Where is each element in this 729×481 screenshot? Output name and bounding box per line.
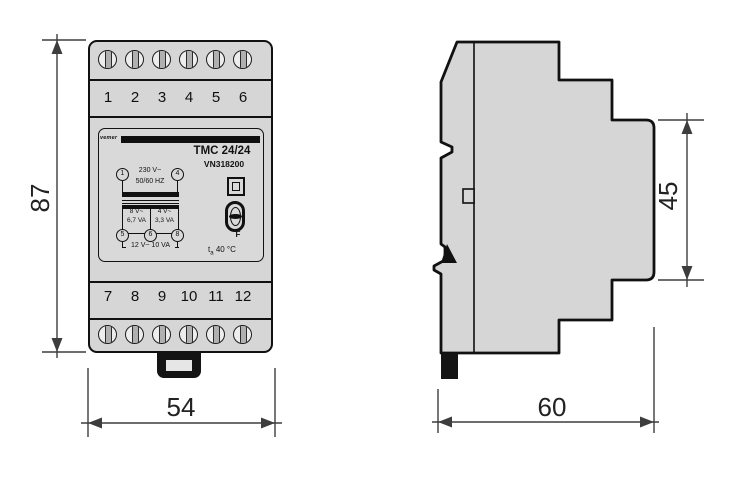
screw-icon bbox=[125, 325, 144, 344]
screw-icon bbox=[233, 50, 252, 69]
terminal-number: 8 bbox=[122, 288, 148, 305]
terminal-number: 5 bbox=[203, 89, 229, 106]
din-clip-tab-side bbox=[441, 354, 458, 379]
secondary-left-power: 6,7 VA bbox=[123, 217, 150, 224]
divider-line bbox=[90, 318, 271, 320]
terminal-number: 10 bbox=[176, 288, 202, 305]
secondary-terminal-left: 5 bbox=[116, 229, 129, 242]
ambient-value: 40 °C bbox=[216, 245, 236, 254]
screw-icon bbox=[179, 325, 198, 344]
secondary-terminal-mid: 6 bbox=[144, 229, 157, 242]
ambient-subscript: a bbox=[210, 251, 213, 257]
terminal-number: 3 bbox=[149, 89, 175, 106]
dim-front-face-height-label: 45 bbox=[653, 174, 683, 218]
fuse-label: F bbox=[232, 230, 244, 239]
secondary-left-voltage: 8 V~ bbox=[123, 208, 150, 215]
primary-frequency: 50/60 HZ bbox=[128, 178, 172, 185]
terminal-number: 4 bbox=[176, 89, 202, 106]
transformer-core-line bbox=[122, 200, 179, 201]
din-clip-slot bbox=[166, 360, 192, 371]
technical-drawing: 1 2 3 4 5 6 vemer TMC 24/24 VN318200 1 4… bbox=[0, 0, 729, 481]
primary-voltage: 230 V~ bbox=[128, 167, 172, 174]
dim-depth-label: 60 bbox=[522, 392, 582, 423]
dim-60-arrow-left bbox=[438, 417, 452, 428]
double-insulation-class-ii-icon bbox=[227, 177, 245, 196]
screw-icon bbox=[98, 325, 117, 344]
secondary-total-rating: 12 V~ 10 VA bbox=[126, 242, 175, 249]
din-clip-tab-front bbox=[157, 351, 201, 378]
terminal-number: 11 bbox=[203, 288, 229, 305]
screw-icon bbox=[233, 325, 252, 344]
terminal-number: 9 bbox=[149, 288, 175, 305]
terminal-number: 1 bbox=[95, 89, 121, 106]
dim-45-arrow-top bbox=[682, 120, 693, 134]
terminal-number: 12 bbox=[230, 288, 256, 305]
dim-45-arrow-bottom bbox=[682, 266, 693, 280]
brand-bar bbox=[121, 136, 260, 143]
screw-icon bbox=[206, 325, 225, 344]
side-view-latch-notch bbox=[463, 189, 474, 203]
primary-terminal-right: 4 bbox=[171, 168, 184, 181]
dim-54-arrow-right bbox=[261, 418, 275, 429]
fuse-holder-icon bbox=[225, 201, 245, 232]
screw-icon bbox=[125, 50, 144, 69]
terminal-number: 7 bbox=[95, 288, 121, 305]
transformer-core-line bbox=[122, 203, 179, 204]
divider-line bbox=[90, 281, 271, 283]
dim-width-label: 54 bbox=[151, 392, 211, 423]
dim-height-label: 87 bbox=[25, 176, 55, 220]
secondary-right-voltage: 4 V~ bbox=[151, 208, 178, 215]
terminal-number: 6 bbox=[230, 89, 256, 106]
divider-line bbox=[90, 79, 271, 81]
screw-icon bbox=[206, 50, 225, 69]
ambient-temperature: ta 40 °C bbox=[208, 245, 254, 257]
dim-87-arrow-bottom bbox=[52, 338, 63, 352]
transformer-primary-winding bbox=[122, 192, 179, 197]
screw-icon bbox=[152, 50, 171, 69]
screw-icon bbox=[179, 50, 198, 69]
screw-icon bbox=[98, 50, 117, 69]
dim-60-arrow-right bbox=[640, 417, 654, 428]
product-code: VN318200 bbox=[174, 159, 274, 169]
dim-54-arrow-left bbox=[88, 418, 102, 429]
divider-line bbox=[90, 116, 271, 118]
secondary-right-power: 3,3 VA bbox=[151, 217, 178, 224]
dim-87-arrow-top bbox=[52, 40, 63, 54]
screw-icon bbox=[152, 325, 171, 344]
brand-logo: vemer bbox=[100, 135, 117, 141]
primary-terminal-left: 1 bbox=[116, 168, 129, 181]
model-name: TMC 24/24 bbox=[172, 145, 272, 157]
terminal-number: 2 bbox=[122, 89, 148, 106]
secondary-terminal-right: 8 bbox=[171, 229, 184, 242]
